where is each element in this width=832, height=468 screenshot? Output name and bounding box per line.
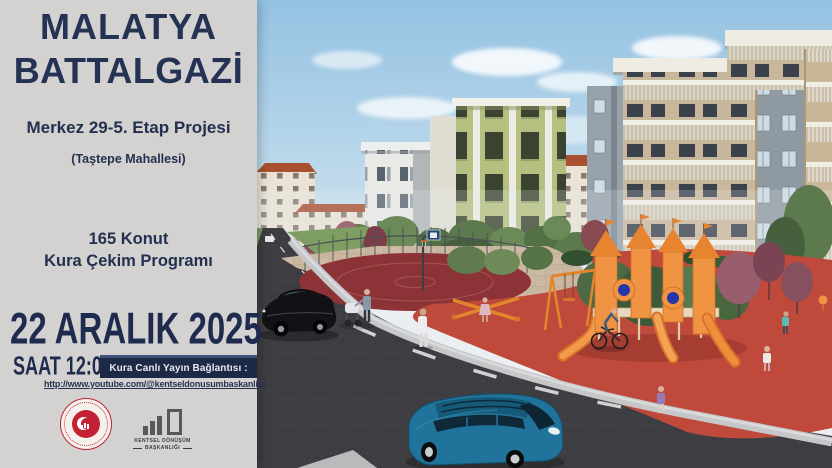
stream-label-strip: Kura Canlı Yayın Bağlantısı :	[100, 355, 257, 378]
stream-url-link[interactable]: http://www.youtube.com/@kentseldonusumba…	[44, 379, 265, 389]
logo-text-line2: BAŞKANLIĞI	[145, 445, 180, 452]
project-title: Merkez 29-5. Etap Projesi	[0, 118, 257, 138]
lottery-program-label: Kura Çekim Programı	[0, 250, 257, 272]
info-panel: MALATYA BATTALGAZİ Merkez 29-5. Etap Pro…	[0, 0, 257, 468]
neighborhood-label: (Taştepe Mahallesi)	[0, 152, 257, 166]
blue-car	[405, 394, 565, 468]
event-date: 22 ARALIK 2025	[10, 303, 262, 354]
housing-count: 165 Konut	[0, 228, 257, 250]
program-title: 165 Konut Kura Çekim Programı	[0, 228, 257, 272]
stream-label: Kura Canlı Yayın Bağlantısı :	[109, 363, 247, 374]
project-render	[257, 0, 832, 468]
buildings-icon	[143, 403, 182, 435]
ministry-seal-icon	[60, 398, 112, 450]
time-row: SAAT 12:00 Kura Canlı Yayın Bağlantısı :	[0, 352, 257, 378]
district-title: BATTALGAZİ	[0, 50, 257, 92]
city-title: MALATYA	[0, 6, 257, 48]
lottery-announcement-poster: MALATYA BATTALGAZİ Merkez 29-5. Etap Pro…	[0, 0, 832, 468]
distant-car	[265, 236, 274, 242]
kentsel-donusum-logo: KENTSEL DÖNÜŞÜM BAŞKANLIĞI	[128, 398, 198, 452]
logo-row: KENTSEL DÖNÜŞÜM BAŞKANLIĞI	[0, 398, 257, 452]
logo-text-line1: KENTSEL DÖNÜŞÜM	[133, 438, 192, 445]
